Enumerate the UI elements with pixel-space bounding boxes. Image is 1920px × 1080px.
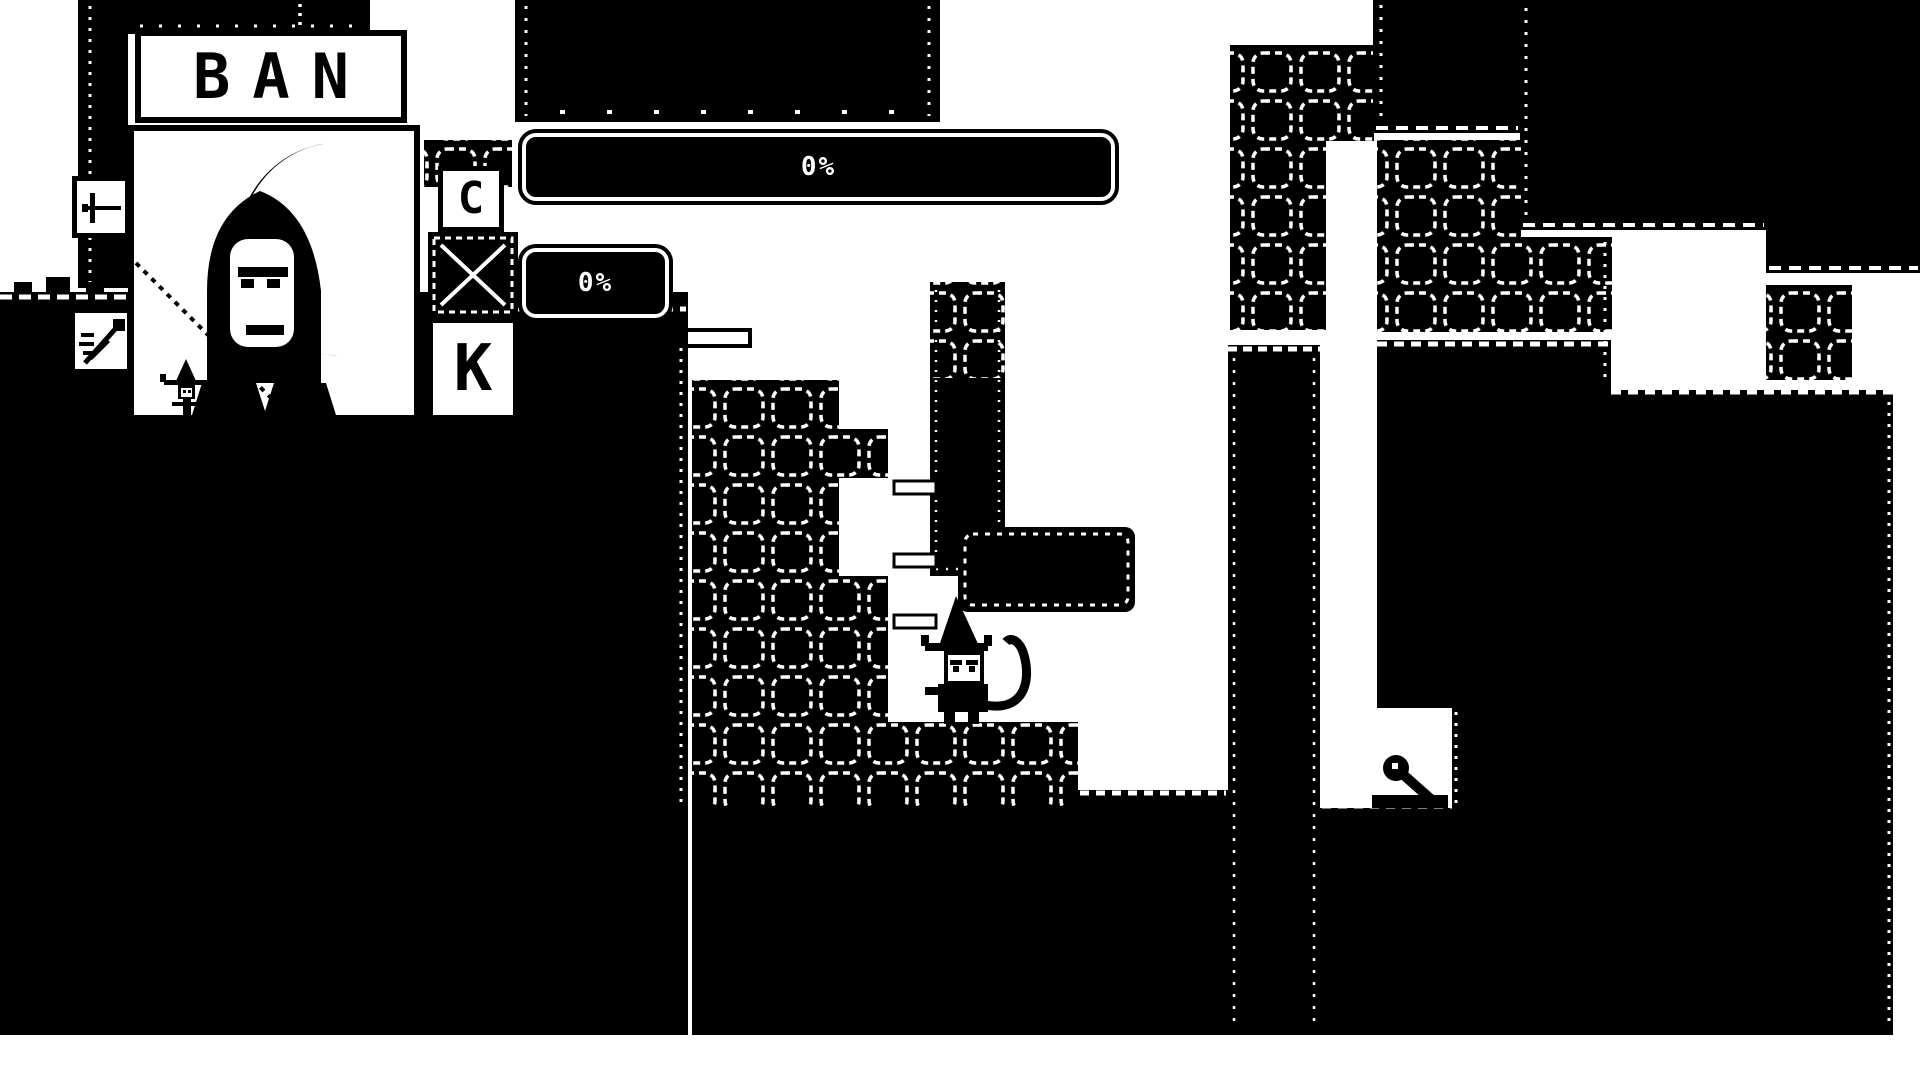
pen-icon-slot[interactable] [70,308,132,374]
progress-bar-main: 0% [522,133,1115,201]
hooded-figure [134,131,414,415]
bank-sign-text: BAN [171,46,371,108]
game-screen[interactable]: BAN [0,0,1920,1080]
sword-icon [77,181,125,233]
progress-bar-small: 0% [522,248,669,318]
pen-icon [75,313,127,369]
bank-sign-letter-k: K [428,318,518,420]
terrain-floor [692,722,1228,1035]
creature-alcove [1320,708,1456,1035]
crate-box [428,232,518,318]
terrain-top-structure [515,0,940,122]
bank-portrait [128,125,420,421]
terrain-dotted-platform [958,527,1135,612]
progress-bar-main-value: 0% [801,152,836,182]
terrain-right-column [1228,345,1320,1035]
bank-sign-letter-c: C [438,166,504,232]
floating-slabs [894,481,936,628]
tile-grid-topright [1230,45,1374,330]
progress-bar-small-value: 0% [578,268,613,298]
crate-x-icon [428,232,518,318]
bank-sign-top: BAN [135,30,407,123]
ledge-slab [686,330,750,346]
sword-icon-slot[interactable] [72,176,130,238]
